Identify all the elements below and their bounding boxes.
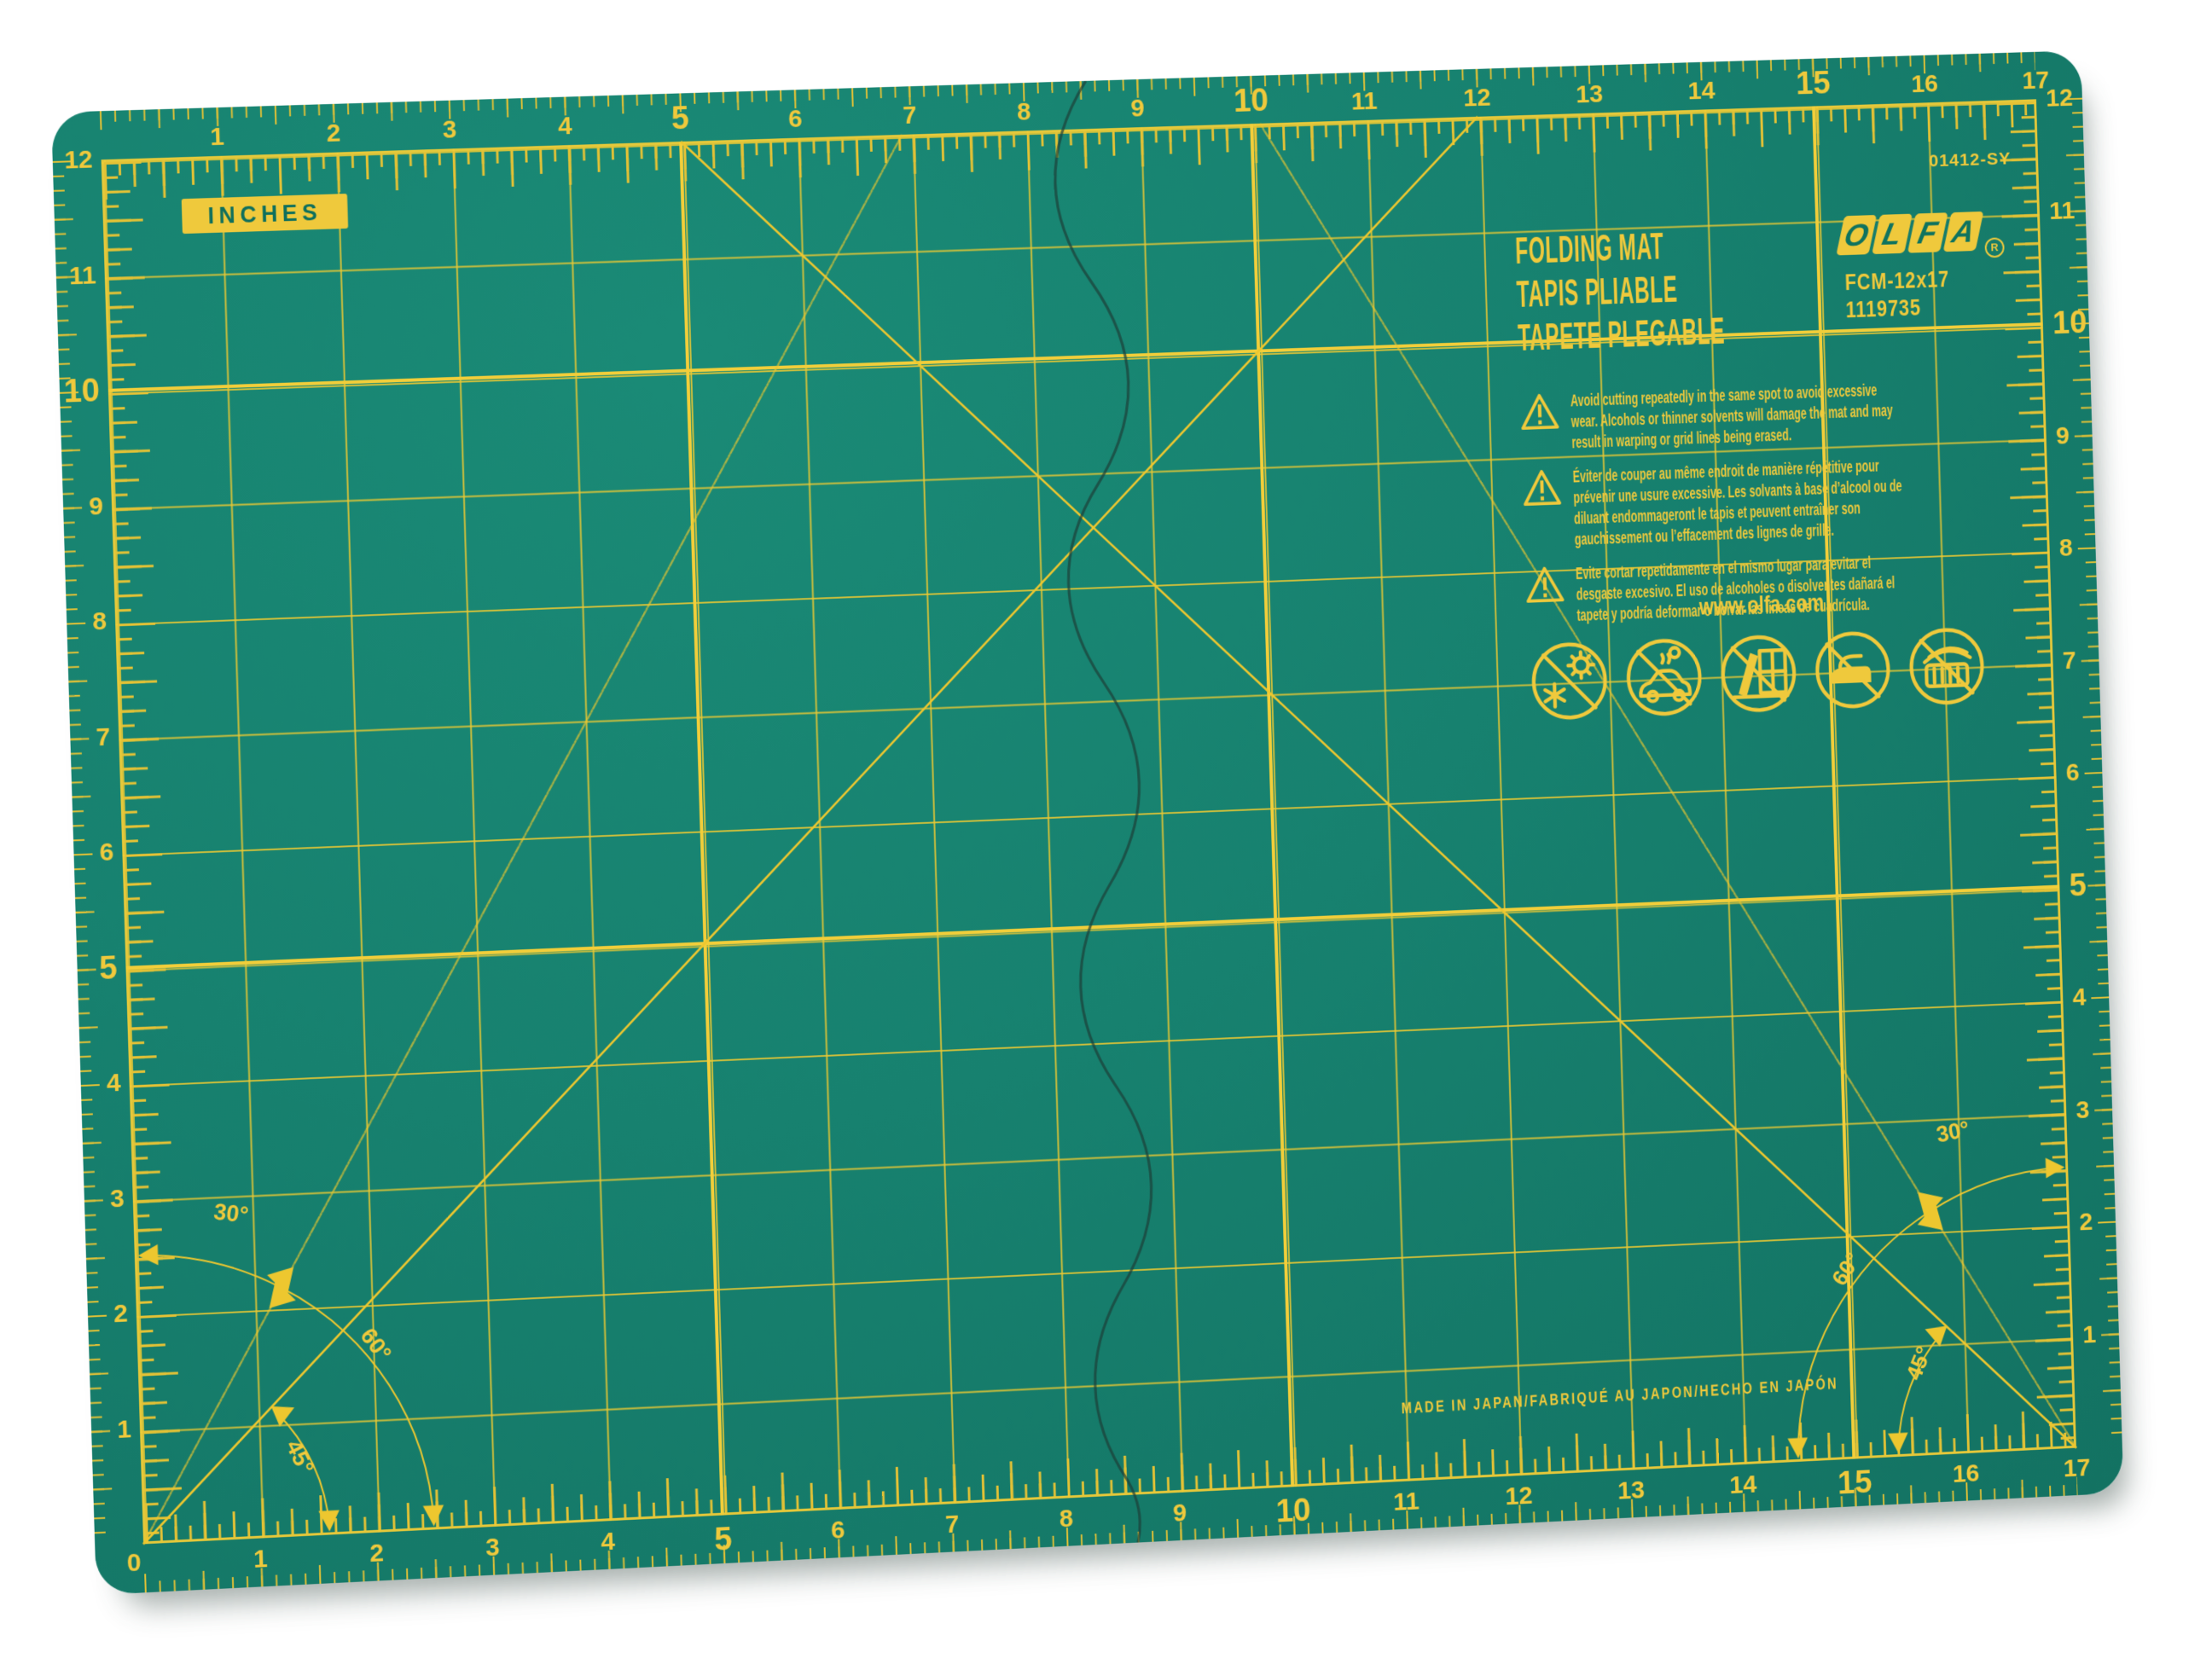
ruler-number-left-8: 8 — [92, 607, 107, 637]
ruler-number-right-7: 7 — [2062, 646, 2076, 675]
ruler-number-right-2: 2 — [2079, 1208, 2093, 1237]
ruler-number-top-10: 10 — [1233, 83, 1269, 120]
ruler-number-bottom-14: 14 — [1729, 1470, 1757, 1500]
logo-letter: O — [1836, 215, 1877, 255]
warning-triangle-icon — [1522, 468, 1562, 507]
ruler-number-top-2: 2 — [326, 119, 341, 148]
ruler-number-top-8: 8 — [1017, 98, 1031, 127]
ruler-number-left-5: 5 — [99, 949, 118, 987]
ruler-number-right-5: 5 — [2069, 867, 2087, 904]
ruler-number-left-3: 3 — [110, 1184, 125, 1214]
ruler-number-left-4: 4 — [106, 1069, 121, 1099]
ruler-number-left-12: 12 — [64, 146, 93, 176]
ruler-number-bottom-8: 8 — [1059, 1505, 1073, 1534]
olfa-logo: OLFAR — [1837, 212, 1992, 264]
no-heater-icon — [1905, 623, 1989, 710]
ruler-number-left-11: 11 — [69, 261, 97, 291]
ruler-number-left-9: 9 — [89, 492, 104, 522]
ruler-number-bottom-2: 2 — [369, 1539, 385, 1568]
ruler-number-bottom-7: 7 — [945, 1510, 960, 1539]
ruler-number-right-4: 4 — [2072, 983, 2087, 1012]
no-window-sunlight-icon — [1716, 630, 1801, 717]
inches-badge: INCHES — [182, 194, 348, 234]
ruler-number-right-11: 11 — [2049, 196, 2076, 225]
ruler-number-left-2: 2 — [113, 1299, 129, 1329]
logo-letter: L — [1872, 214, 1913, 254]
ruler-number-top-1: 1 — [210, 123, 225, 152]
ruler-number-top-14: 14 — [1687, 77, 1716, 106]
no-hot-car-icon — [1622, 634, 1706, 722]
warning-triangle-icon — [1524, 565, 1565, 604]
photo-canvas: INCHES 01412-SY 30° 60° 45° 30° 60° 45° … — [0, 0, 2212, 1664]
ruler-number-bottom-15: 15 — [1838, 1464, 1872, 1502]
ruler-number-bottom-0: 0 — [126, 1549, 142, 1579]
ruler-number-right-1: 1 — [2082, 1320, 2097, 1349]
ruler-number-top-16: 16 — [1911, 70, 1939, 99]
cutting-mat: INCHES 01412-SY 30° 60° 45° 30° 60° 45° … — [51, 50, 2123, 1595]
ruler-number-bottom-1: 1 — [253, 1545, 269, 1574]
ruler-number-right-3: 3 — [2076, 1096, 2090, 1125]
no-iron-icon — [1810, 626, 1895, 713]
ruler-number-top-3: 3 — [442, 115, 457, 144]
ruler-number-bottom-5: 5 — [714, 1522, 733, 1559]
ruler-number-right-12: 12 — [2046, 84, 2074, 113]
ruler-number-right-9: 9 — [2056, 421, 2070, 450]
logo-letter: F — [1907, 212, 1948, 252]
ruler-number-bottom-3: 3 — [485, 1534, 500, 1563]
inches-label: INCHES — [207, 198, 322, 229]
ruler-number-top-5: 5 — [671, 101, 689, 137]
warning-text-fr: Éviter de couper au même endroit de mani… — [1572, 455, 1907, 550]
ruler-number-left-10: 10 — [63, 373, 100, 410]
ruler-number-bottom-10: 10 — [1275, 1493, 1311, 1530]
logo-letter: A — [1943, 212, 1984, 252]
ruler-number-right-10: 10 — [2052, 304, 2087, 341]
ruler-number-bottom-17: 17 — [2063, 1454, 2091, 1484]
ruler-number-right-6: 6 — [2065, 759, 2080, 788]
ruler-number-left-1: 1 — [117, 1415, 132, 1445]
item-number: 1119735 — [1845, 293, 1971, 323]
no-sun-or-frost-icon — [1527, 637, 1612, 725]
ruler-number-top-11: 11 — [1350, 87, 1378, 116]
ruler-number-right-8: 8 — [2058, 534, 2073, 563]
warning-triangle-icon — [1519, 392, 1559, 431]
ruler-number-top-4: 4 — [558, 112, 572, 141]
ruler-number-bottom-11: 11 — [1393, 1487, 1420, 1517]
warning-en: Avoid cutting repeatedly in the same spo… — [1519, 375, 1997, 455]
ruler-number-bottom-16: 16 — [1952, 1459, 1980, 1489]
angle-label-30-left: 30° — [212, 1198, 250, 1228]
ruler-number-bottom-12: 12 — [1505, 1481, 1533, 1511]
ruler-number-bottom-9: 9 — [1173, 1499, 1187, 1528]
ruler-number-top-15: 15 — [1796, 66, 1831, 102]
ruler-number-left-7: 7 — [96, 722, 111, 752]
warning-text-en: Avoid cutting repeatedly in the same spo… — [1570, 379, 1905, 453]
ruler-number-top-6: 6 — [787, 105, 802, 134]
model-number: FCM-12x17 — [1844, 266, 1971, 296]
ruler-number-top-7: 7 — [903, 101, 917, 130]
ruler-number-bottom-4: 4 — [601, 1528, 615, 1557]
ruler-number-bottom-13: 13 — [1617, 1476, 1646, 1506]
label-block: FOLDING MAT TAPIS PLIABLE TAPETE PLEGABL… — [1515, 215, 2006, 725]
ruler-number-top-13: 13 — [1576, 80, 1604, 109]
ruler-number-top-9: 9 — [1130, 95, 1145, 124]
ruler-number-left-6: 6 — [99, 838, 114, 867]
part-code: 01412-SY — [1929, 149, 2012, 171]
ruler-number-bottom-6: 6 — [830, 1516, 845, 1545]
warning-fr: Éviter de couper au même endroit de mani… — [1522, 451, 2000, 552]
ruler-number-top-12: 12 — [1463, 84, 1491, 113]
